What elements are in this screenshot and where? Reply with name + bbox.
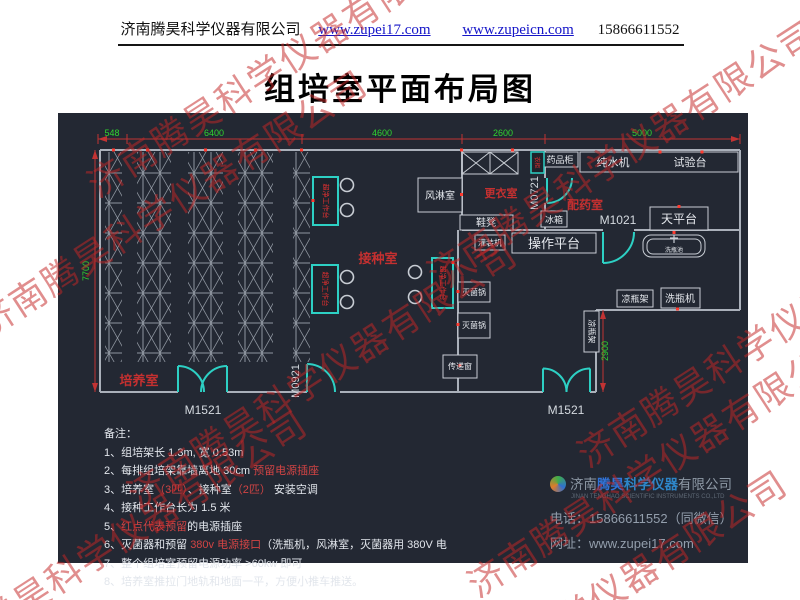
dim-2900: 2900 [600,341,610,361]
locker-cabinets [462,152,518,174]
fridge-label: 冰箱 [545,214,563,225]
door-m1021-arc [603,232,634,263]
equipment-boxes [418,152,738,378]
stools [341,179,422,309]
water-machine-label: 纯水机 [597,155,630,169]
cooling-rack-vert-label: 凉瓶架 [587,320,597,344]
notes-title: 备注： [104,425,524,444]
door-m1021-label: M1021 [600,213,637,227]
logo-cn-instruments: 科学仪器 [624,477,678,492]
logo-block: 济南腾昊科学仪器有限公司 JINAN TENGHAO SCIENTIFIC IN… [550,473,748,552]
door-m1521-right [543,369,590,393]
operation-platform-label: 操作平台 [528,236,580,251]
sterilizer1-label: 灭菌锅 [462,287,486,297]
header-divider [118,44,684,46]
room-peiyangshi: 培养室 [119,373,158,388]
logo-cn-suffix: 有限公司 [678,477,732,492]
room-jiezhongshi: 接种室 [358,251,397,266]
company-logo-icon [550,476,566,492]
note-line: 4、接种工作台长为 1.5 米 [104,499,524,518]
logo-cn-tenghao: 腾昊 [597,477,624,492]
shoe-bench-label: 鞋凳 [476,216,496,229]
room-gengyishi: 更衣室 [485,186,518,200]
door-m1521-right-label: M1521 [548,403,585,417]
balance-table-label: 天平台 [661,211,697,226]
cad-panel: 548 6400 4600 2600 5000 7700 2900 [58,113,748,563]
logo-row: 济南腾昊科学仪器有限公司 [550,473,748,493]
clean-bench2-label: 超净工作台 [321,272,330,307]
bottle-washer-label: 洗瓶机 [665,292,695,305]
notes-block: 备注： 1、组培架长 1.3m, 宽 0.53m2、每排组培架靠墙离地 30cm… [104,425,524,592]
notes-list: 1、组培架长 1.3m, 宽 0.53m2、每排组培架靠墙离地 30cm 预留电… [104,444,524,592]
note-line: 7、整个组培室预留电源功率 >60kw 即可 [104,555,524,574]
sterilizer2-label: 灭菌锅 [462,320,486,330]
link-zupeicn[interactable]: www.zupeicn.com [462,22,574,38]
logo-web: 网址：www.zupei17.com [550,533,748,552]
dim-7700: 7700 [81,261,91,281]
door-m0721-label: M0721 [529,176,541,210]
page-title: 组培室平面布局图 [0,64,800,109]
culture-racks [105,152,310,362]
page: 济南腾昊科学仪器有限公司 www.zupei17.com www.zupeicn… [0,0,800,600]
page-header: 济南腾昊科学仪器有限公司 www.zupei17.com www.zupeicn… [0,18,800,39]
note-line: 2、每排组培架靠墙离地 30cm 预留电源插座 [104,462,524,481]
cooling-rack-label: 凉瓶架 [621,293,648,304]
link-zupei17[interactable]: www.zupei17.com [318,22,430,38]
note-line: 5、红点代表预留的电源插座 [104,518,524,537]
room-peiyaoshi: 配药室 [567,197,603,212]
note-line: 1、组培架长 1.3m, 宽 0.53m [104,444,524,463]
door-m1521-left [178,366,227,392]
filling-machine-label: 灌装机 [478,238,502,248]
header-phone: 15866611552 [598,22,680,38]
dim-548: 548 [104,128,119,138]
note-line: 6、灭菌器和预留 380v 电源接口（洗瓶机，风淋室，灭菌器用 380V 电 [104,536,524,555]
dim-4600: 4600 [372,128,392,138]
note-line: 3、培养室（3匹）、接种室（2匹） 安装空调 [104,481,524,500]
note-line: 8、培养室推拉门地轨和地面一平，方便小推车推送。 [104,573,524,592]
test-bench-label: 试验台 [674,155,707,169]
door-m1521-left-label: M1521 [185,403,222,417]
clean-bench1-label: 超净工作台 [322,184,331,219]
dim-2600: 2600 [493,128,513,138]
clean-bench3-label: 超净工作台 [439,266,448,301]
dim-6400: 6400 [204,128,224,138]
logo-cn-pre: 济南 [570,477,597,492]
door-m0921-arc [307,364,335,392]
wardrobe-label: 衣柜 [533,156,541,168]
sink-label: 洗瓶池 [665,246,683,254]
door-m0921-label: M0921 [290,364,302,398]
floorplan-svg: 548 6400 4600 2600 5000 7700 2900 [58,113,748,423]
pass-window-label: 传递窗 [448,361,472,371]
company-name: 济南腾昊科学仪器有限公司 [120,22,300,38]
logo-english: JINAN TENGHAO SCIENTIFIC INSTRUMENTS CO.… [571,494,748,500]
air-shower-label: 风淋室 [425,189,455,202]
logo-phone: 电话：15866611552（同微信） [550,508,748,527]
medicine-cabinet-label: 药品柜 [546,154,573,165]
dim-5000: 5000 [632,128,652,138]
